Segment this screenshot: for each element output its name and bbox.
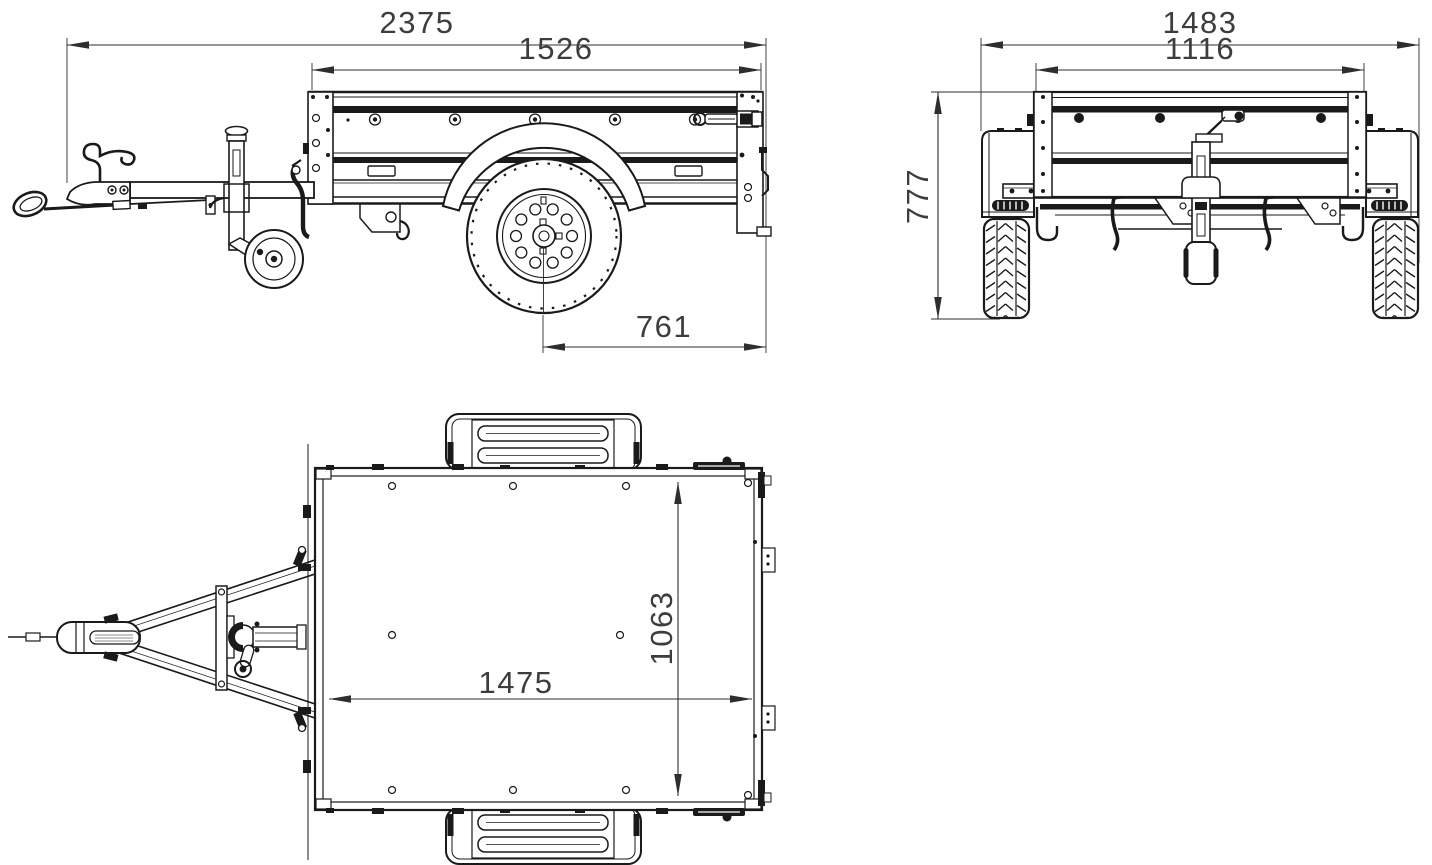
rub-rail-top (333, 106, 737, 113)
arrowhead-left (312, 66, 334, 74)
dim-label-bed-length: 1526 (519, 31, 594, 66)
dim-label-body-width: 1116 (1165, 31, 1235, 66)
gusset-right (1297, 198, 1340, 224)
hinge-pin-right (1366, 114, 1373, 126)
front-wheel-right (1373, 219, 1418, 318)
arrowhead-right (1397, 41, 1419, 49)
arrowhead-left (67, 41, 89, 49)
underbed-bracket (360, 204, 409, 239)
dim-label-overall-length: 2375 (380, 5, 455, 40)
dim-label-height: 777 (900, 168, 935, 224)
arrowhead-left (981, 41, 1003, 49)
j-hook-left (1037, 207, 1057, 240)
hinge-pin-left (1027, 114, 1034, 126)
top-view: 1475 1063 (8, 414, 775, 864)
side-view: 2375 1526 (10, 5, 771, 353)
coupling-handle (84, 144, 134, 182)
top-fender-upper (446, 414, 641, 470)
front-view: 1483 1116 777 (900, 5, 1419, 319)
arrowhead-left (543, 343, 565, 351)
cross-member (216, 586, 227, 690)
rear-corner-latch-upper (693, 457, 745, 471)
post-right (1348, 92, 1366, 197)
drawing-svg: 2375 1526 (0, 0, 1432, 865)
drawbar-beam (130, 182, 314, 198)
jockey-tire-front (1186, 242, 1216, 284)
arrowhead-up (934, 92, 942, 114)
arrowhead-down (934, 297, 942, 319)
jockey-crank-knob (226, 127, 248, 136)
jockey-wheel-side (210, 127, 303, 289)
side-dim-axle-to-rear: 761 (543, 309, 766, 353)
arrowhead-left (1036, 66, 1058, 74)
top-bed-box (315, 457, 775, 822)
bed-rivets (346, 114, 700, 125)
side-dim-overall-length: 2375 (67, 5, 766, 353)
arrowhead-right (1342, 66, 1364, 74)
dim-label-inner-width: 1063 (644, 591, 679, 666)
side-wheel-assembly (443, 123, 645, 313)
j-hook-right (1343, 207, 1363, 240)
arrowhead-right (744, 41, 766, 49)
jockey-clamp-front (1182, 177, 1220, 198)
top-drawbar (8, 547, 315, 732)
post-left (1034, 92, 1052, 197)
tailgate-latch-side (694, 111, 762, 127)
cable-connector (26, 633, 40, 641)
front-wheel-left (984, 219, 1029, 318)
rear-corner-latch-lower (693, 808, 745, 822)
trailer-technical-drawing: 2375 1526 (0, 0, 1432, 865)
jockey-post (229, 141, 244, 250)
aframe-leg-bottom (110, 639, 315, 718)
side-marker-front (368, 166, 395, 176)
arrowhead-right (739, 66, 761, 74)
mud-flap-right (1371, 200, 1408, 211)
top-fender-lower (446, 808, 641, 864)
side-marker-rear (675, 166, 702, 176)
side-drawbar-group (10, 127, 314, 289)
arrowhead-right (744, 343, 766, 351)
dim-label-axle-to-rear: 761 (636, 309, 692, 344)
rear-stand-foot (757, 227, 771, 236)
front-dim-body-width: 1116 (1036, 31, 1364, 91)
mud-flap-left (992, 200, 1029, 211)
dim-label-inner-length: 1475 (479, 665, 554, 700)
jockey-wheel-top (227, 616, 306, 677)
corner-block (316, 799, 331, 809)
corner-block (316, 469, 331, 479)
